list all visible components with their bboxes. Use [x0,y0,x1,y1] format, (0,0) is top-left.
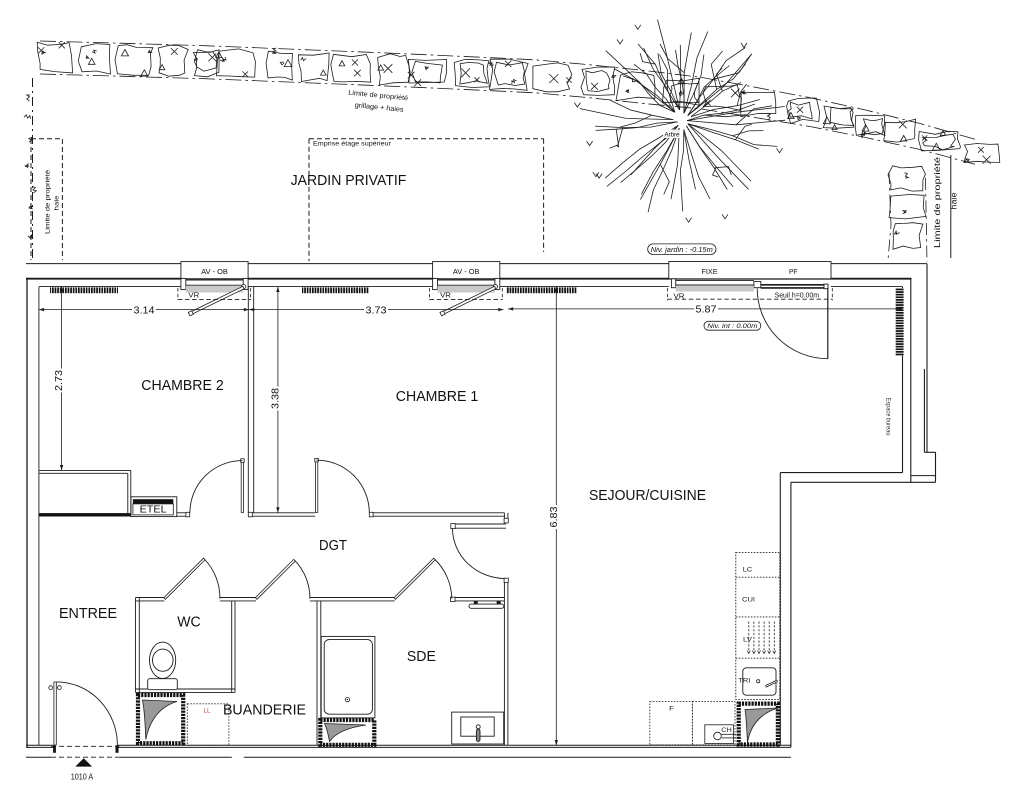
svg-text:AV - OB: AV - OB [453,267,480,276]
svg-text:Niv. jardin : -0.15m: Niv. jardin : -0.15m [651,247,713,254]
svg-text:ETEL: ETEL [140,504,167,515]
svg-text:6.83: 6.83 [548,506,560,527]
svg-text:CH: CH [721,727,732,734]
svg-text:VR: VR [440,290,451,299]
svg-text:DGT: DGT [319,538,347,554]
svg-text:SDE: SDE [407,649,436,665]
svg-text:LL: LL [204,709,212,715]
svg-text:AV - OB: AV - OB [201,267,228,276]
svg-text:2.73: 2.73 [53,370,65,391]
svg-text:SEJOUR/CUISINE: SEJOUR/CUISINE [589,488,706,504]
svg-text:LC: LC [743,567,753,574]
svg-text:Limite de propriété: Limite de propriété [932,157,942,248]
svg-text:3.14: 3.14 [134,304,155,316]
svg-text:F: F [669,705,674,712]
svg-text:CHAMBRE 2: CHAMBRE 2 [141,378,223,394]
svg-text:5.87: 5.87 [696,304,717,316]
svg-text:JARDIN PRIVATIF: JARDIN PRIVATIF [291,172,407,189]
svg-text:ENTREE: ENTREE [59,606,117,622]
svg-text:LV: LV [743,636,753,643]
svg-text:haie: haie [54,195,61,211]
svg-text:3.38: 3.38 [269,388,281,409]
svg-text:FIXE: FIXE [702,267,718,276]
svg-text:Espace bureau: Espace bureau [884,398,890,436]
svg-text:1010 A: 1010 A [71,773,94,782]
svg-text:CUI: CUI [742,597,755,604]
svg-text:VR: VR [674,291,685,300]
svg-text:TRI: TRI [738,677,750,684]
svg-text:haie: haie [950,192,959,210]
svg-text:VR: VR [188,290,199,299]
svg-text:PF: PF [789,267,798,276]
svg-text:BUANDERIE: BUANDERIE [223,703,306,719]
svg-text:Limite de propriété: Limite de propriété [45,169,52,234]
svg-text:Emprise étage supérieur: Emprise étage supérieur [313,141,392,148]
svg-text:CHAMBRE 1: CHAMBRE 1 [396,389,478,405]
svg-text:Seuil h=0.00m: Seuil h=0.00m [775,292,820,299]
svg-text:WC: WC [177,614,200,630]
svg-text:Arbre: Arbre [665,132,680,139]
svg-text:3.73: 3.73 [366,304,387,316]
svg-text:Niv. int : 0.00m: Niv. int : 0.00m [707,323,757,330]
